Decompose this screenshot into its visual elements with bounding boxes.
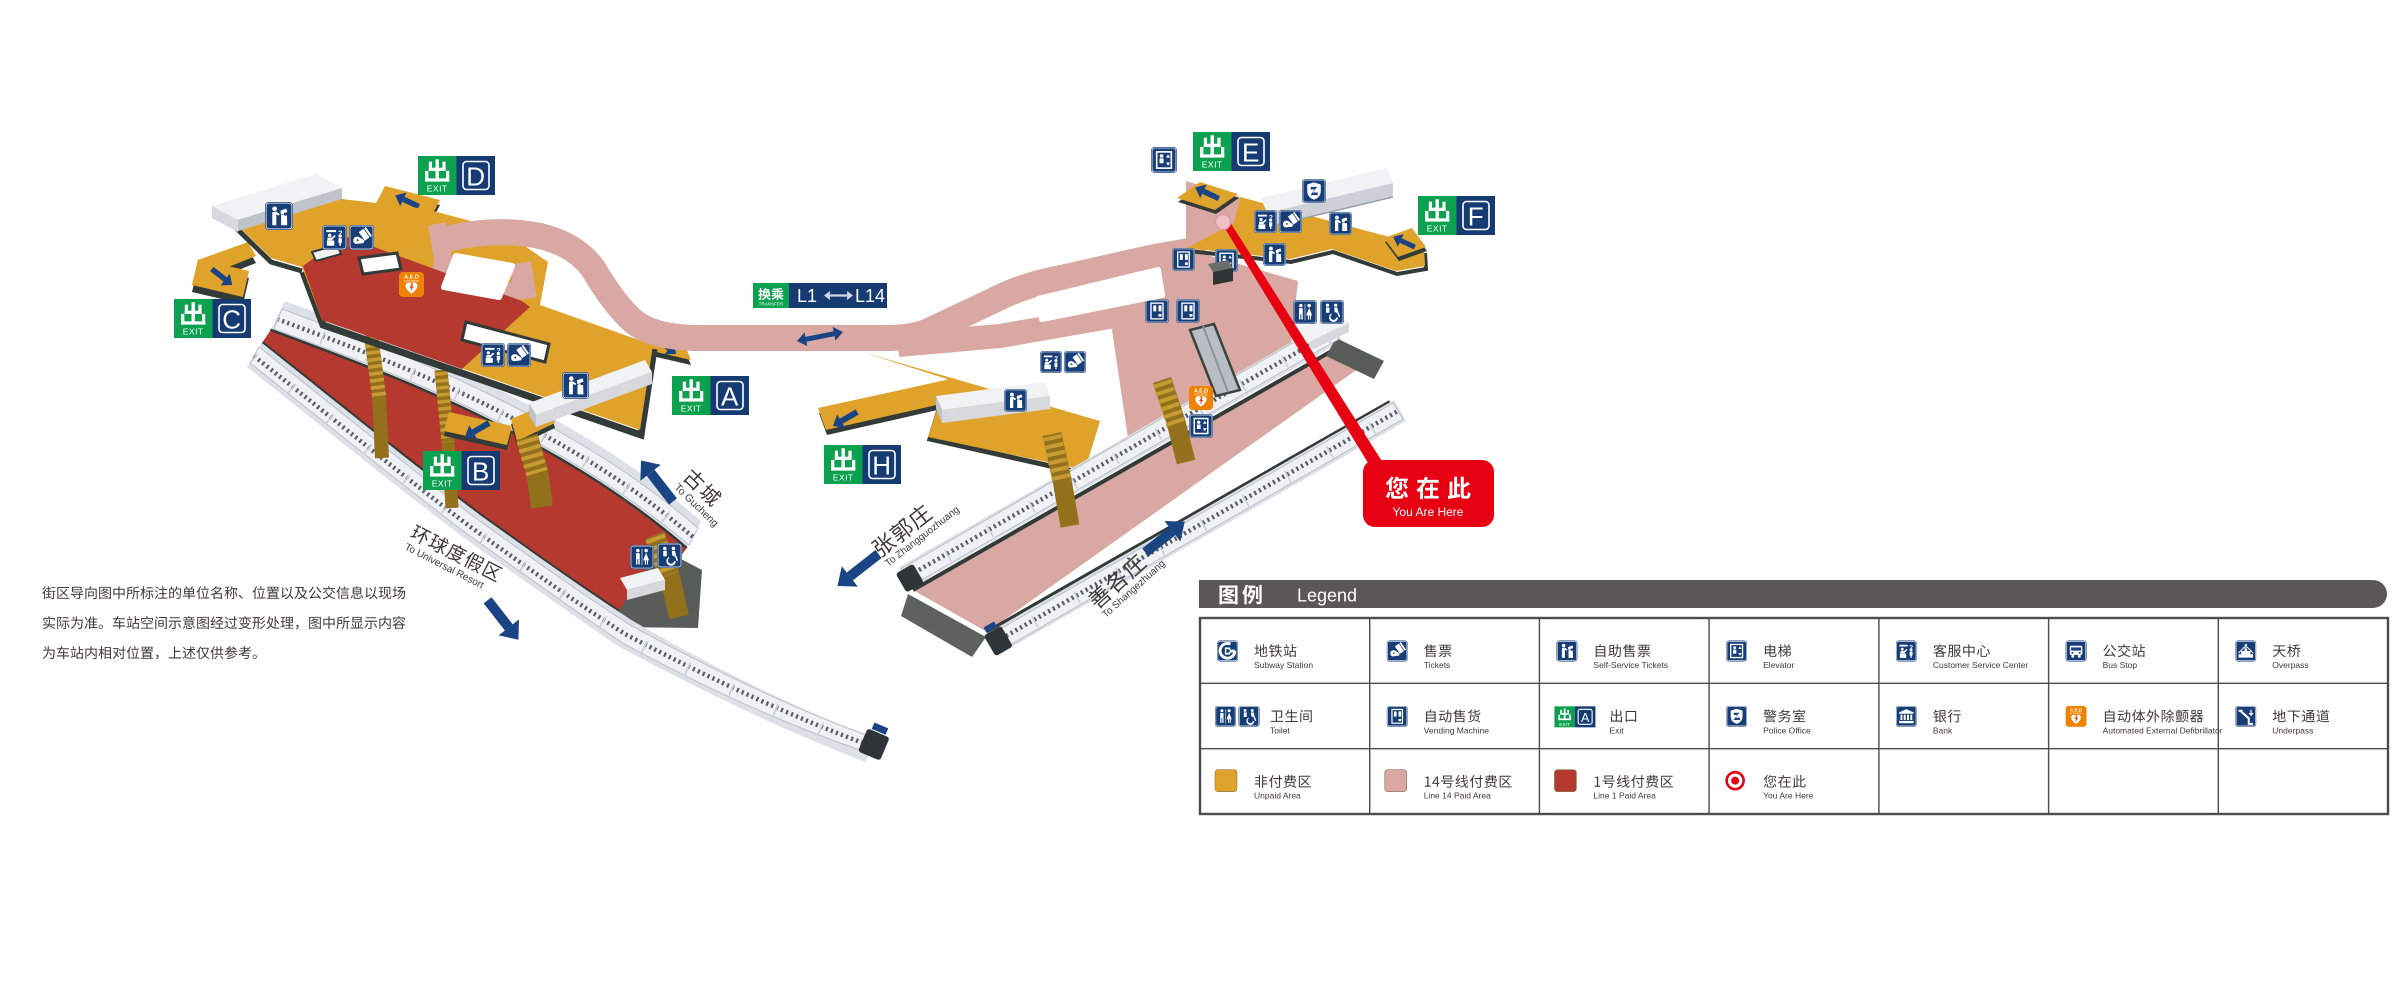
svg-text:Customer Service Center: Customer Service Center <box>1933 660 2029 670</box>
svg-text:Elevator: Elevator <box>1763 660 1794 670</box>
svg-text:EXIT: EXIT <box>432 479 453 489</box>
svg-text:EXIT: EXIT <box>427 184 448 194</box>
svg-text:EXIT: EXIT <box>1202 160 1223 170</box>
svg-text:L1: L1 <box>797 286 817 306</box>
svg-text:D: D <box>466 162 485 192</box>
svg-text:Line 14 Paid Area: Line 14 Paid Area <box>1424 791 1491 801</box>
svg-text:Bus Stop: Bus Stop <box>2103 660 2138 670</box>
svg-text:Bank: Bank <box>1933 725 1953 735</box>
svg-text:EXIT: EXIT <box>183 327 204 337</box>
svg-text:A: A <box>1581 711 1590 725</box>
svg-text:EXIT: EXIT <box>1559 722 1570 728</box>
svg-text:C: C <box>222 305 241 335</box>
svg-text:EXIT: EXIT <box>1427 224 1448 234</box>
svg-text:Self-Service Tickets: Self-Service Tickets <box>1593 660 1668 670</box>
svg-text:Toilet: Toilet <box>1270 725 1290 735</box>
svg-text:TRANSFER: TRANSFER <box>759 302 784 307</box>
svg-text:You Are Here: You Are Here <box>1763 791 1814 801</box>
svg-text:Vending Machine: Vending Machine <box>1424 725 1489 735</box>
svg-text:E: E <box>1242 138 1259 168</box>
svg-text:Unpaid Area: Unpaid Area <box>1254 791 1301 801</box>
svg-text:Overpass: Overpass <box>2272 660 2308 670</box>
svg-text:You Are Here: You Are Here <box>1393 505 1464 519</box>
svg-text:EXIT: EXIT <box>833 473 854 483</box>
svg-text:L14: L14 <box>855 286 885 306</box>
svg-text:EXIT: EXIT <box>681 404 702 414</box>
svg-text:B: B <box>472 457 489 487</box>
svg-text:Line 1 Paid Area: Line 1 Paid Area <box>1593 791 1656 801</box>
svg-text:Police Office: Police Office <box>1763 725 1811 735</box>
svg-text:Automated External Defibrillat: Automated External Defibrillator <box>2103 725 2223 735</box>
svg-text:Exit: Exit <box>1609 725 1624 735</box>
svg-text:H: H <box>872 451 891 481</box>
svg-text:Underpass: Underpass <box>2272 725 2313 735</box>
svg-text:A: A <box>721 382 739 412</box>
svg-text:F: F <box>1468 202 1484 232</box>
svg-text:Legend: Legend <box>1297 586 1357 606</box>
svg-text:Tickets: Tickets <box>1424 660 1451 670</box>
svg-text:Subway Station: Subway Station <box>1254 660 1313 670</box>
